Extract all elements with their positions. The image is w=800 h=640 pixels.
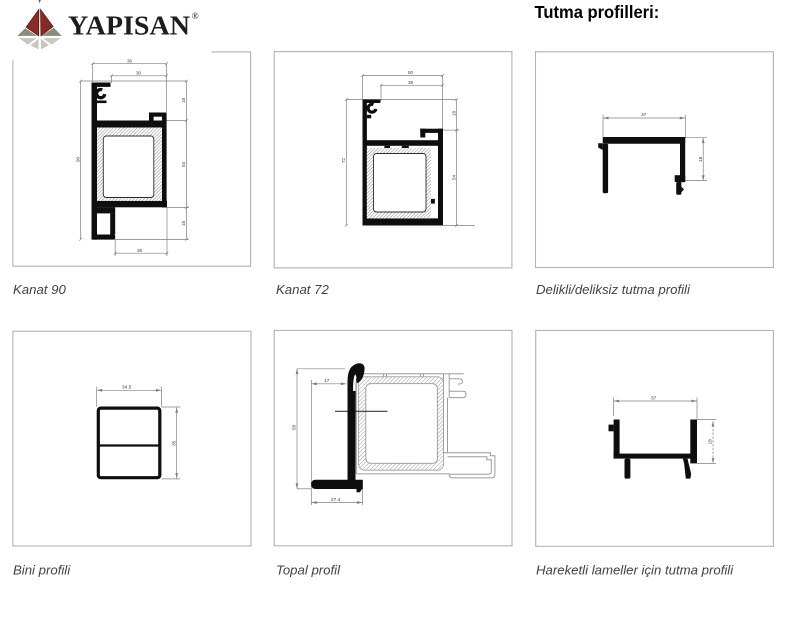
svg-text:37: 37	[641, 112, 647, 118]
svg-text:Tutma profilleri:: Tutma profilleri:	[535, 1, 660, 22]
svg-text:18: 18	[451, 110, 456, 116]
svg-text:YAPISAN: YAPISAN	[68, 10, 190, 41]
svg-text:37: 37	[651, 395, 657, 401]
svg-text:18: 18	[708, 439, 714, 445]
svg-text:34.5: 34.5	[122, 385, 132, 391]
svg-text:54: 54	[451, 174, 456, 180]
svg-text:Topal profil: Topal profil	[276, 563, 341, 578]
svg-text:35: 35	[171, 440, 177, 446]
svg-text:Bini profili: Bini profili	[13, 563, 71, 578]
svg-text:18: 18	[181, 97, 186, 103]
svg-text:18: 18	[698, 156, 704, 162]
svg-text:50: 50	[408, 70, 414, 75]
svg-text:54: 54	[181, 161, 186, 167]
svg-text:17: 17	[324, 378, 330, 384]
svg-text:Kanat 72: Kanat 72	[276, 282, 329, 297]
svg-text:36: 36	[127, 58, 133, 63]
svg-text:38: 38	[408, 80, 414, 85]
svg-text:30: 30	[136, 71, 142, 76]
svg-text:Delikli/deliksiz tutma profili: Delikli/deliksiz tutma profili	[536, 282, 691, 297]
svg-text:36: 36	[137, 248, 143, 253]
svg-text:18: 18	[181, 220, 186, 226]
svg-text:®: ®	[192, 11, 199, 22]
svg-text:90: 90	[75, 156, 80, 162]
svg-text:27.4: 27.4	[331, 497, 341, 503]
svg-text:Kanat 90: Kanat 90	[13, 282, 66, 297]
svg-text:72: 72	[341, 157, 346, 163]
svg-text:50: 50	[292, 424, 298, 430]
svg-text:Hareketli lameller için tutma: Hareketli lameller için tutma profili	[536, 563, 734, 578]
